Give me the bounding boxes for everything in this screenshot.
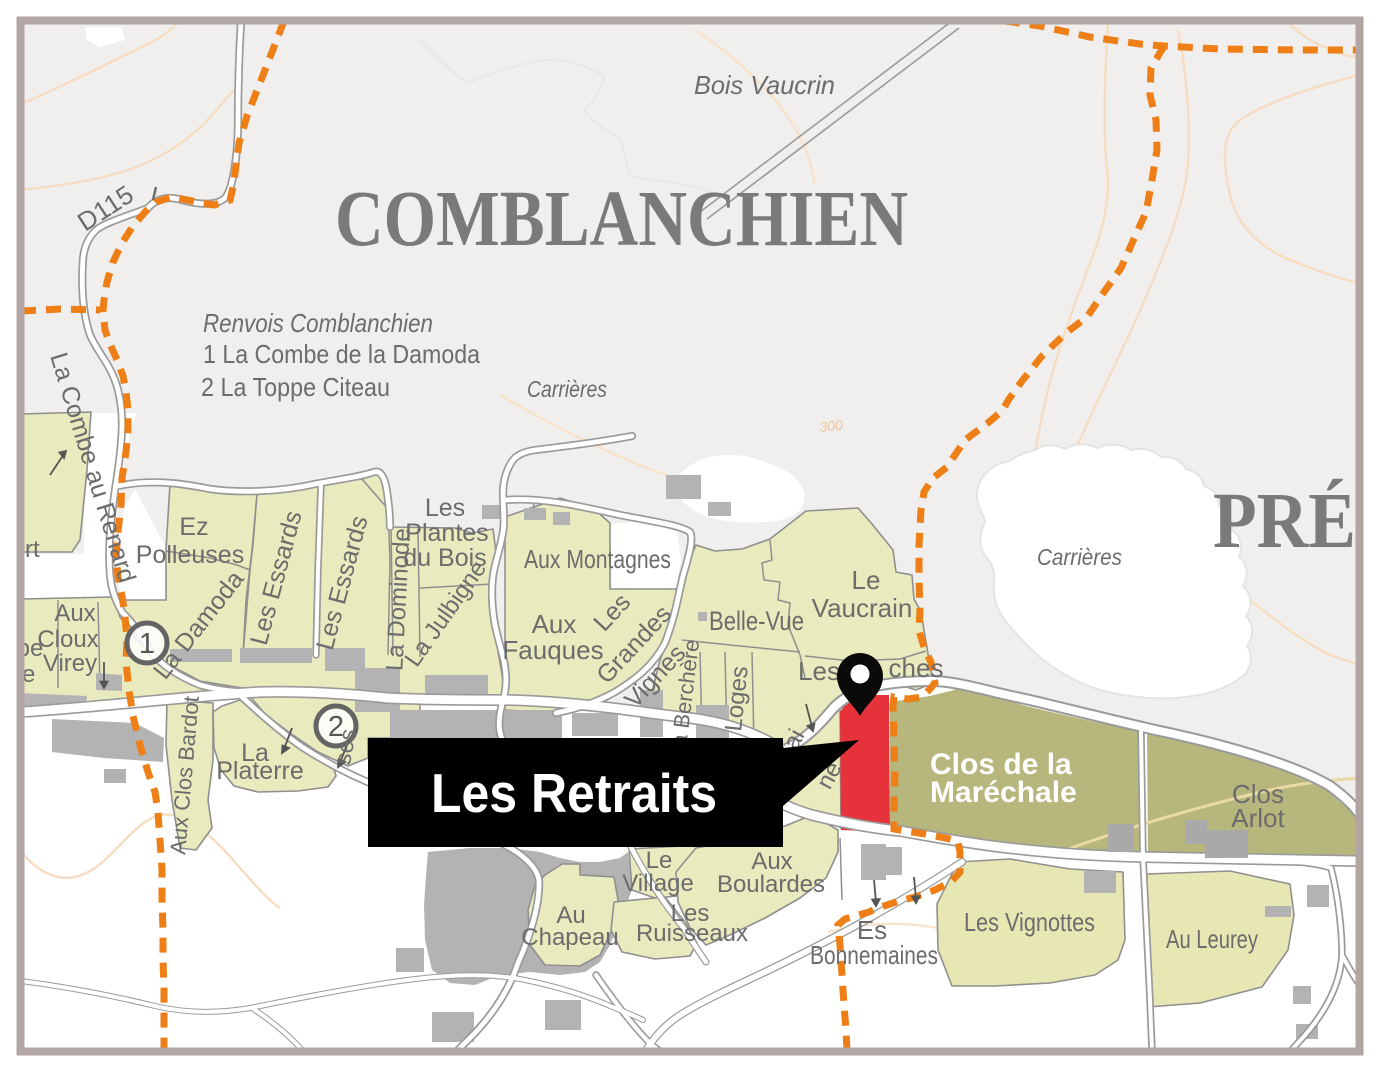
svg-text:Cloux: Cloux — [37, 626, 98, 653]
svg-text:Arlot: Arlot — [1231, 803, 1285, 833]
svg-text:Fauques: Fauques — [502, 635, 603, 665]
svg-text:Village: Village — [622, 870, 694, 897]
svg-text:Polleuses: Polleuses — [136, 541, 244, 569]
svg-text:Boulardes: Boulardes — [717, 871, 825, 898]
svg-text:1 La Combe de la Damoda: 1 La Combe de la Damoda — [203, 339, 480, 369]
svg-text:ches: ches — [889, 653, 944, 683]
svg-text:Bois Vaucrin: Bois Vaucrin — [694, 70, 835, 100]
svg-text:Belle-Vue: Belle-Vue — [709, 606, 804, 636]
svg-text:du Bois: du Bois — [403, 544, 486, 572]
svg-text:Les: Les — [425, 494, 465, 522]
svg-text:PRÉ: PRÉ — [1213, 478, 1356, 565]
svg-text:Vaucrain: Vaucrain — [812, 593, 913, 623]
svg-text:Chapeau: Chapeau — [521, 924, 618, 951]
svg-text:Les Vignottes: Les Vignottes — [964, 907, 1095, 937]
svg-text:COMBLANCHIEN: COMBLANCHIEN — [335, 176, 908, 263]
svg-text:Ez: Ez — [179, 513, 208, 541]
svg-text:2 La Toppe Citeau: 2 La Toppe Citeau — [201, 372, 390, 402]
svg-text:Virey: Virey — [43, 650, 97, 677]
svg-text:rt: rt — [25, 536, 40, 563]
svg-text:Les Retraits: Les Retraits — [431, 762, 717, 824]
svg-text:Renvois Comblanchien: Renvois Comblanchien — [203, 308, 433, 338]
svg-text:Carrières: Carrières — [1037, 544, 1122, 570]
svg-text:300: 300 — [819, 417, 844, 435]
svg-text:Au Leurey: Au Leurey — [1166, 924, 1258, 954]
svg-text:Bonnemaines: Bonnemaines — [810, 940, 938, 970]
svg-text:Aux: Aux — [54, 600, 95, 627]
svg-text:Maréchale: Maréchale — [930, 776, 1077, 809]
svg-text:Plantes: Plantes — [405, 519, 488, 547]
svg-text:Le: Le — [852, 565, 881, 595]
svg-text:Platerre: Platerre — [216, 757, 304, 785]
svg-text:Ruisseaux: Ruisseaux — [636, 920, 748, 947]
svg-text:Les: Les — [798, 656, 840, 686]
svg-text:1: 1 — [139, 628, 155, 660]
svg-text:Aux Montagnes: Aux Montagnes — [524, 544, 671, 574]
svg-text:Carrières: Carrières — [527, 376, 607, 402]
